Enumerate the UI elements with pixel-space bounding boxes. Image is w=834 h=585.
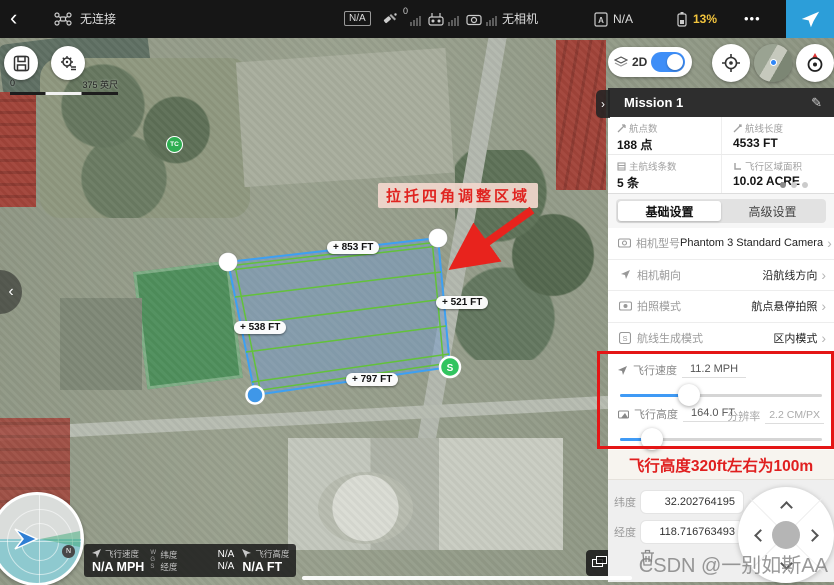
north-badge: N (62, 545, 75, 558)
battery-icon (676, 11, 688, 32)
map-poi-marker: TC (166, 136, 183, 153)
more-menu-button[interactable]: ••• (744, 0, 761, 38)
chevron-right-icon: › (827, 235, 832, 251)
locate-button[interactable] (712, 44, 750, 82)
dpad-left-button[interactable] (754, 529, 767, 542)
edge-length-left: + 538 FT (234, 321, 286, 334)
route-mode-icon: S (618, 332, 632, 344)
camera-signal-bars (486, 16, 497, 26)
scale-distance: 375 英尺 (82, 78, 118, 91)
checklist-icon: A (594, 11, 608, 32)
mission-settings-button[interactable] (51, 46, 85, 80)
chevron-right-icon: › (821, 330, 826, 346)
altitude-slider-head: 飞行高度 164.0 FT (618, 406, 743, 422)
edit-mission-button[interactable]: ✎ (811, 95, 822, 111)
setting-route-mode[interactable]: S 航线生成模式 区内模式 › (608, 323, 834, 355)
scale-zero: 0 (10, 78, 15, 91)
drag-corners-hint: 拉托四角调整区域 (378, 183, 538, 208)
camera-heading-icon (618, 269, 632, 280)
edge-length-bottom: + 797 FT (346, 373, 398, 386)
mission-stats: 航点数 188 点 航线长度 4533 FT 主航线条数 5 条 飞行区域面积 … (608, 117, 834, 194)
minimap-location-dot (770, 59, 777, 66)
chevron-left-icon: ‹ (8, 283, 13, 301)
airplane-icon (799, 8, 821, 30)
route-length-icon (733, 124, 742, 133)
gps-signal-bars (410, 16, 421, 26)
mode-2d-label: 2D (632, 55, 647, 69)
compass-button[interactable] (796, 44, 834, 82)
camera-icon (466, 13, 482, 31)
mission-header: Mission 1 ✎ (608, 88, 834, 117)
telemetry-speed-label: 飞行速度 (105, 548, 139, 560)
camera-model-icon (618, 238, 631, 248)
drone-icon (54, 12, 72, 31)
telemetry-lon-label: 经度 (160, 561, 177, 573)
mission-title: Mission 1 (624, 95, 811, 110)
checklist-status: N/A (613, 0, 633, 38)
corner-handle-bottom-left[interactable] (247, 387, 264, 404)
layers-icon (614, 56, 628, 68)
remote-controller-icon (428, 12, 444, 31)
heading-beam (40, 531, 80, 547)
edge-length-top: + 853 FT (327, 241, 379, 254)
corner-handle-top-right[interactable] (429, 229, 448, 248)
latitude-input[interactable]: 32.202764195 (640, 490, 744, 514)
minimap-button[interactable] (754, 44, 792, 82)
flight-sliders-section: 飞行速度 11.2 MPH 飞行高度 164.0 FT 分辨率 2.2 CM/P… (608, 354, 834, 450)
telemetry-lat-label: 纬度 (160, 549, 177, 561)
connection-status: 无连接 (80, 0, 116, 38)
tab-basic-settings[interactable]: 基础设置 (618, 201, 721, 221)
dpad-center-button[interactable] (772, 521, 800, 549)
telemetry-speed-value: N/A MPH (92, 560, 144, 574)
telemetry-alt-value: N/A FT (242, 560, 289, 574)
altitude-annotation: 飞行高度320ft左右为100m (608, 450, 834, 480)
longitude-row: 经度 118.716763493 (614, 520, 744, 544)
altitude-icon (618, 410, 629, 419)
longitude-input[interactable]: 118.716763493 (640, 520, 744, 544)
setting-camera-heading[interactable]: 相机朝向 沿航线方向 › (608, 260, 834, 292)
setting-capture-mode[interactable]: 拍照模式 航点悬停拍照 › (608, 291, 834, 323)
tab-advanced-settings[interactable]: 高级设置 (721, 201, 824, 221)
chevron-right-icon: › (821, 298, 826, 314)
save-mission-button[interactable] (4, 46, 38, 80)
panel-collapse-handle[interactable]: › (596, 90, 610, 118)
aircraft-icon (11, 526, 41, 552)
camera-status: 无相机 (502, 0, 538, 38)
telemetry-alt-label: 飞行高度 (255, 548, 289, 560)
speed-icon (618, 366, 628, 375)
compass-icon (804, 52, 826, 74)
stat-waypoints: 航点数 188 点 (608, 117, 721, 154)
svg-text:S: S (622, 334, 627, 343)
stat-area: 飞行区域面积 10.02 ACRE (721, 155, 834, 193)
gear-list-icon (59, 54, 77, 72)
setting-camera-model[interactable]: 相机型号 Phantom 3 Standard Camera › (608, 228, 834, 260)
app-screen: S + 853 FT + 521 FT + 538 FT + 797 FT 拉托… (0, 0, 834, 585)
altitude-icon (242, 549, 252, 558)
area-ruler-icon (733, 162, 742, 171)
chevron-right-icon: › (601, 97, 605, 111)
start-marker-letter: S (447, 363, 454, 374)
lines-icon (617, 162, 626, 171)
corner-handle-top-left[interactable] (219, 253, 238, 272)
stats-page-dots[interactable] (780, 182, 808, 188)
save-icon (13, 55, 30, 72)
battery-percent: 13% (693, 0, 717, 38)
status-bar: ‹ 无连接 N/A 0 无相机 A N/A 13% ••• (0, 0, 834, 38)
back-button[interactable]: ‹ (10, 0, 17, 36)
map-scale-bar: 0375 英尺 (10, 78, 118, 95)
watermark: CSDN @一别如斯AA (639, 549, 828, 578)
aircraft-status-badge: N/A (344, 11, 371, 26)
resolution-readout: 分辨率 2.2 CM/PX (727, 408, 824, 424)
dpad-right-button[interactable] (806, 529, 819, 542)
waypoint-icon (617, 124, 626, 133)
chevron-right-icon: › (821, 267, 826, 283)
map-mode-pill: 2D (608, 47, 692, 77)
mode-2d-toggle[interactable] (651, 52, 685, 72)
wgs-label: WGS (150, 550, 158, 571)
speed-slider-head: 飞行速度 11.2 MPH (618, 362, 746, 378)
latitude-row: 纬度 32.202764195 (614, 490, 744, 514)
home-indicator[interactable] (302, 576, 632, 580)
telemetry-lat-value: N/A (218, 549, 235, 561)
svg-text:A: A (598, 16, 604, 25)
slider-thumb[interactable] (678, 384, 700, 406)
altitude-slider[interactable] (620, 438, 822, 441)
dpad-up-button[interactable] (780, 501, 793, 514)
slider-thumb[interactable] (641, 428, 663, 450)
settings-tabs-strip: 基础设置 高级设置 (608, 194, 834, 228)
speed-slider[interactable] (620, 394, 822, 397)
rc-signal-bars (448, 16, 459, 26)
stat-main-lines: 主航线条数 5 条 (608, 155, 721, 193)
edge-length-right: + 521 FT (436, 296, 488, 309)
gps-satellite-icon (382, 12, 398, 31)
speed-icon (92, 549, 102, 558)
stat-route-length: 航线长度 4533 FT (721, 117, 834, 154)
crosshair-icon (721, 53, 741, 73)
telemetry-lon-value: N/A (218, 561, 235, 573)
telemetry-bar: 飞行速度 N/A MPH WGS 纬度N/A 经度N/A 飞行高度 N/A FT (84, 544, 296, 577)
takeoff-button[interactable] (786, 0, 834, 38)
capture-mode-icon (618, 301, 632, 311)
gps-count: 0 (403, 6, 408, 16)
